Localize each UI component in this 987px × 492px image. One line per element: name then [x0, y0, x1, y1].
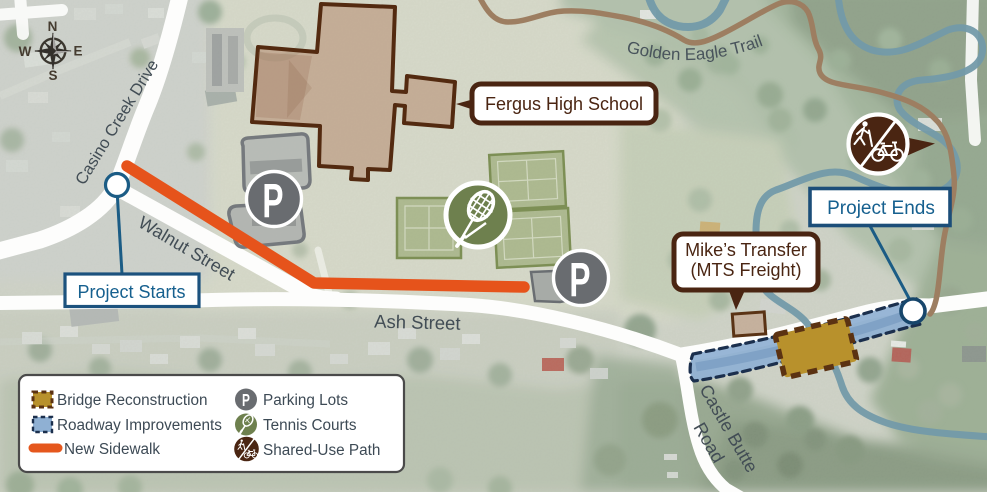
- svg-text:Shared-Use Path: Shared-Use Path: [263, 442, 380, 459]
- svg-text:P: P: [242, 390, 250, 410]
- svg-text:Ash Street: Ash Street: [374, 311, 461, 334]
- svg-text:N: N: [48, 19, 58, 34]
- svg-text:S: S: [48, 68, 57, 83]
- svg-text:E: E: [73, 44, 82, 59]
- svg-text:Roadway Improvements: Roadway Improvements: [57, 417, 222, 434]
- svg-text:Tennis Courts: Tennis Courts: [263, 417, 357, 434]
- svg-text:P: P: [262, 173, 283, 227]
- svg-text:Bridge Reconstruction: Bridge Reconstruction: [57, 392, 208, 409]
- svg-text:Mike’s Transfer: Mike’s Transfer: [685, 240, 807, 260]
- svg-text:Fergus High School: Fergus High School: [485, 94, 643, 114]
- svg-text:Project Starts: Project Starts: [77, 282, 185, 302]
- svg-text:New Sidewalk: New Sidewalk: [64, 441, 160, 458]
- svg-text:W: W: [19, 44, 32, 59]
- svg-text:P: P: [569, 252, 590, 306]
- svg-text:Parking Lots: Parking Lots: [263, 392, 348, 409]
- svg-text:(MTS Freight): (MTS Freight): [690, 260, 801, 280]
- svg-text:Project Ends: Project Ends: [827, 198, 935, 219]
